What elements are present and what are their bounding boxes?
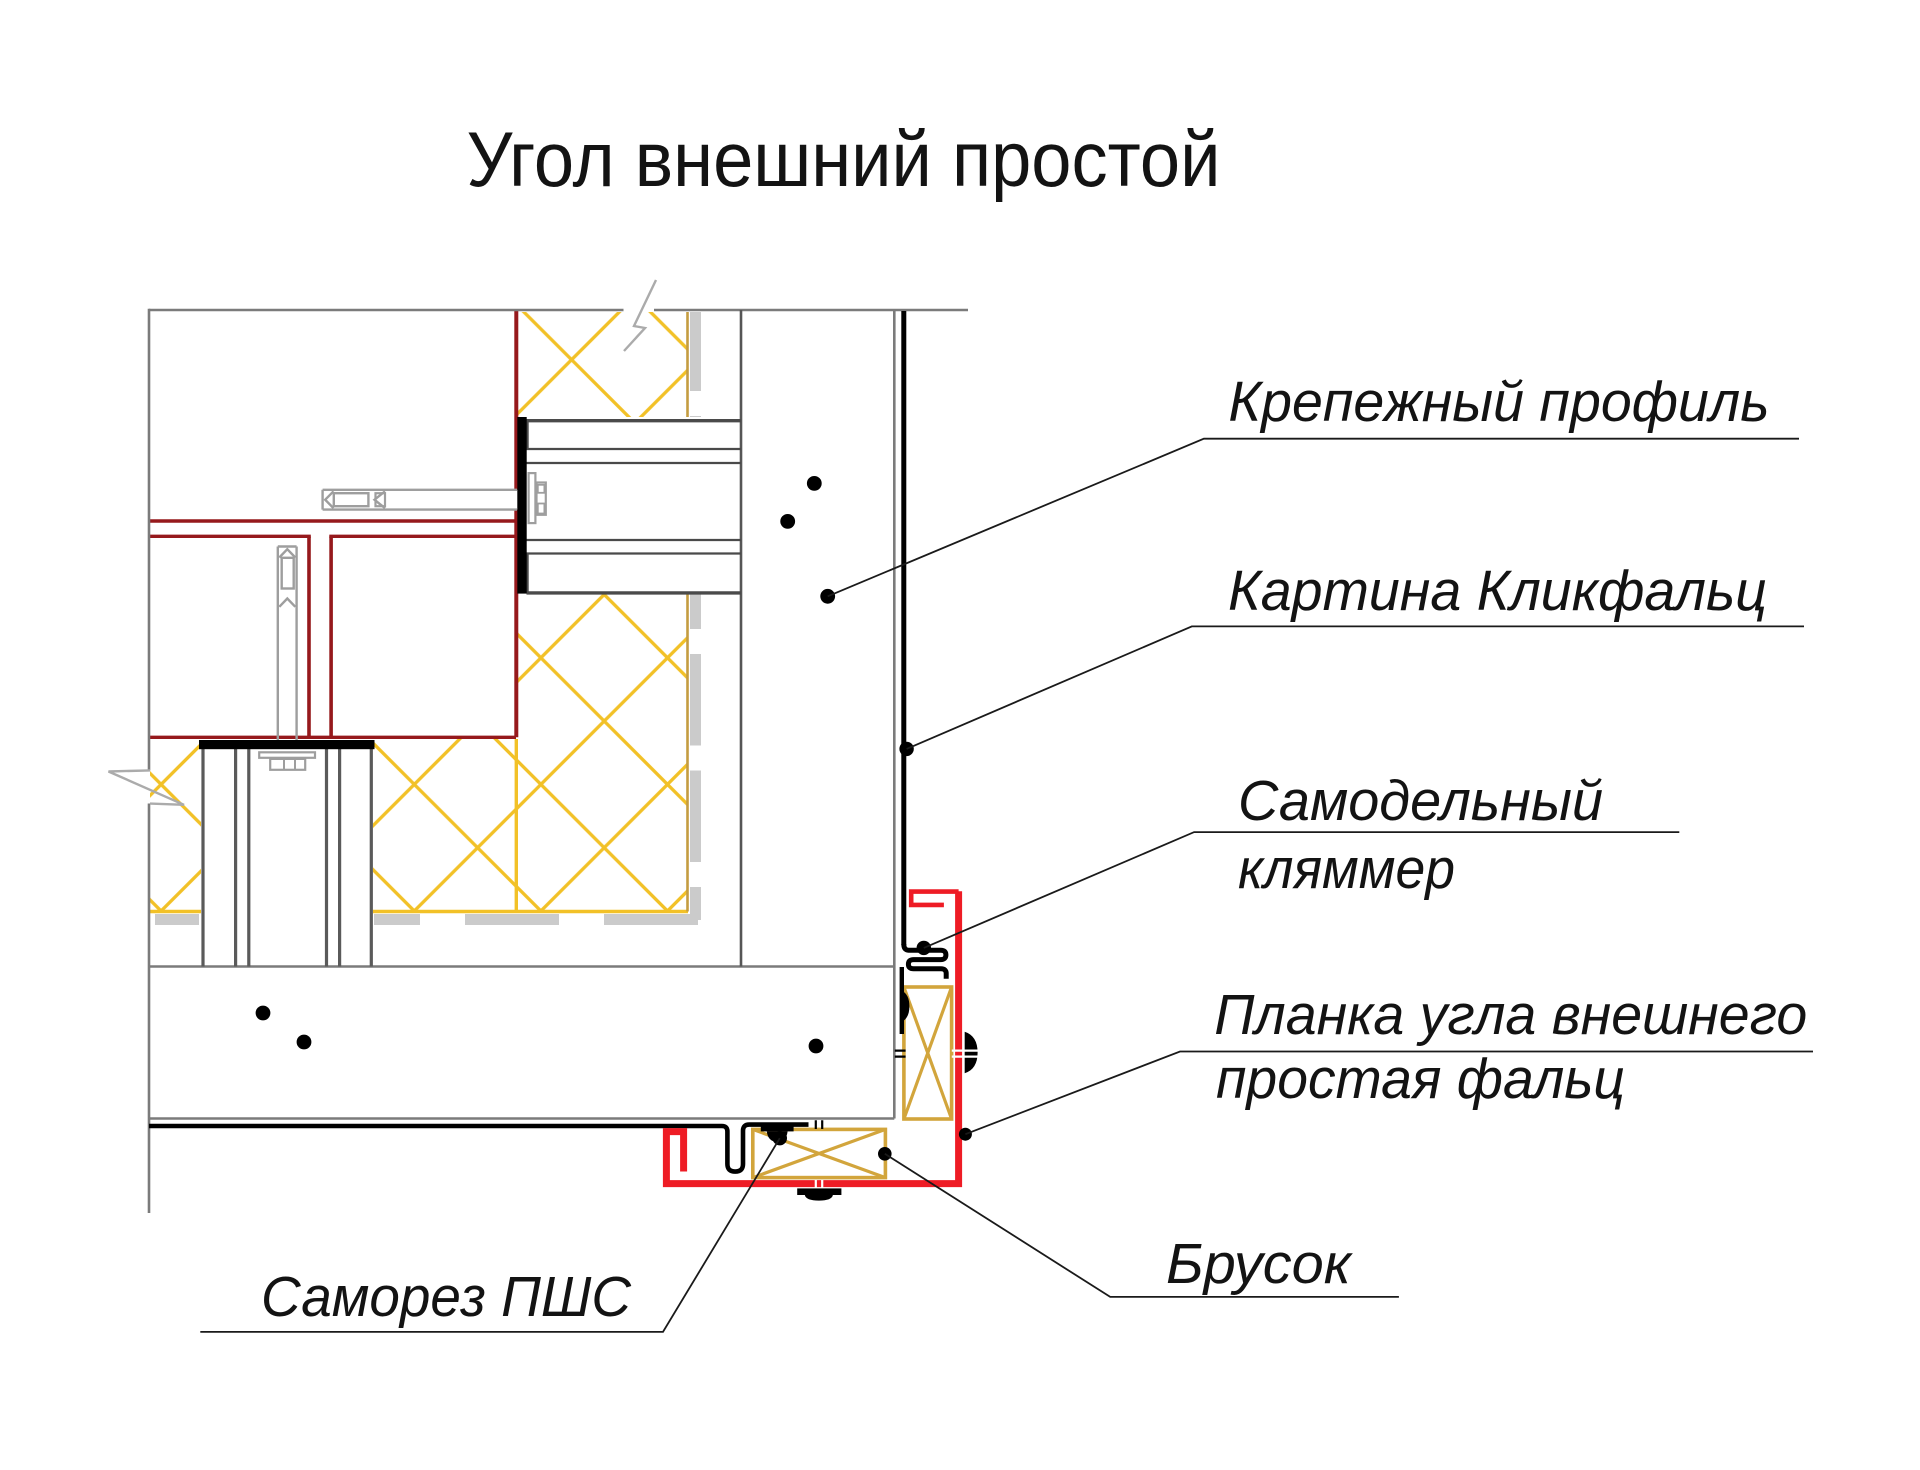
svg-text:Самодельный: Самодельный xyxy=(1238,769,1603,833)
svg-text:Картина Кликфальц: Картина Кликфальц xyxy=(1228,559,1767,623)
svg-text:Планка угла внешнего: Планка угла внешнего xyxy=(1214,983,1807,1047)
svg-text:Саморез ПШС: Саморез ПШС xyxy=(261,1265,632,1329)
svg-text:простая фальц: простая фальц xyxy=(1216,1047,1625,1111)
svg-text:Брусок: Брусок xyxy=(1166,1232,1353,1296)
svg-text:кляммер: кляммер xyxy=(1238,837,1455,901)
svg-text:Крепежный профиль: Крепежный профиль xyxy=(1228,370,1769,434)
svg-text:Угол внешний простой: Угол внешний простой xyxy=(467,115,1221,203)
